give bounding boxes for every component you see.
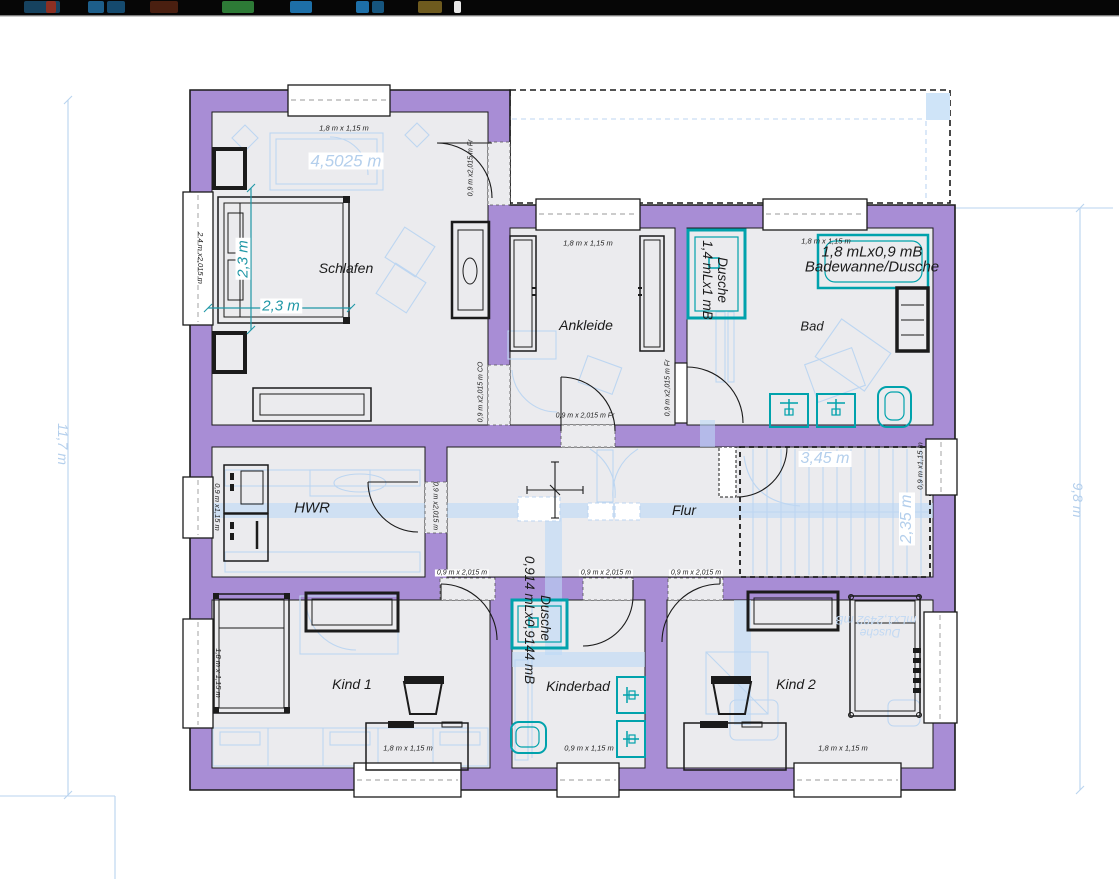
- bed-post: [213, 593, 219, 599]
- window-schlafen-top: [288, 85, 390, 116]
- chair-kind1-back: [404, 676, 444, 684]
- dryer-knob: [230, 522, 234, 529]
- door-leaf-stairs: [719, 447, 736, 497]
- label-win-label-kind1-left: 1,8 m x 1,15 m: [214, 648, 222, 698]
- label-door-label-ankleide: 0,9 m x 2,015 m Fr: [556, 413, 615, 420]
- label-dim-23-v: 2,3 m: [236, 238, 251, 280]
- label-tub-dims: 1,8 mLx0,9 mB: [822, 245, 923, 260]
- label-win-label-ankleide-top: 1,8 m x 1,15 m: [563, 239, 613, 247]
- label-door-label-hwr: 0,9 m x2,015 m: [432, 482, 439, 530]
- label-door-label-schlafen-co: 0,9 m x2,015 m CO: [478, 362, 485, 423]
- door-opening-kind1: [440, 578, 495, 600]
- label-dim-23-h: 2,3 m: [260, 299, 302, 314]
- label-win-label-kind2-bottom: 1,8 m x 1,15 m: [818, 744, 868, 752]
- chair-kind2-back: [711, 676, 751, 684]
- label-room-kinderbad: Kinderbad: [546, 679, 610, 693]
- desk-item: [700, 721, 728, 728]
- bed-post: [284, 707, 290, 713]
- ladder-rung: [913, 688, 921, 693]
- floorplan-canvas[interactable]: [0, 0, 1119, 879]
- washer-knob: [230, 473, 234, 480]
- dryer-knob: [230, 533, 234, 540]
- window-kind2-right: [924, 612, 957, 723]
- window-bad-top: [763, 199, 867, 230]
- label-shower-bad-dims: 1,4 mLx1 mB: [700, 240, 714, 320]
- label-door-label-kinderbad: 0,9 m x 2,015 m: [579, 570, 633, 577]
- floorplan-app-screen: SchlafenAnkleideBadHWRFlurKind 1Kinderba…: [0, 0, 1119, 879]
- label-room-hwr: HWR: [294, 501, 330, 516]
- label-tub-name: Badewanne/Dusche: [805, 260, 939, 275]
- label-room-schlafen: Schlafen: [319, 261, 373, 275]
- label-win-label-hwr-left: 0,9 m x1,15 m: [213, 483, 221, 531]
- ghost-chip: [615, 503, 640, 520]
- roof-terrace-corner: [926, 93, 950, 120]
- door-opening-schlafen-fr: [488, 142, 510, 205]
- label-win-label-schlafen-top: 1,8 m x 1,15 m: [319, 124, 369, 132]
- label-win-label-schlafen-left: 2,4 m x2,015 m: [196, 232, 204, 284]
- label-dim-98: 9,8 m: [1071, 482, 1085, 517]
- door-opening-kinderbad: [583, 578, 633, 600]
- roof-terrace-outline: [510, 90, 950, 203]
- label-room-ankleide: Ankleide: [559, 318, 613, 332]
- label-room-bad: Bad: [800, 320, 823, 333]
- ladder-rung: [913, 668, 921, 673]
- window-ankleide-top: [536, 199, 640, 230]
- window-stairs-right: [926, 439, 957, 495]
- label-dim-235: 2,35 m: [899, 493, 915, 546]
- ghost-band-bad-door: [700, 420, 715, 447]
- ladder-rung: [913, 648, 921, 653]
- label-dim-345: 3,45 m: [799, 451, 852, 467]
- ghost-chip: [588, 503, 613, 520]
- washer-knob: [230, 484, 234, 491]
- label-ghost-dusche-dims: mLx1,2492 mB: [836, 614, 917, 626]
- desk-item: [388, 721, 414, 728]
- label-door-label-schlafen-fr: 0,9 m x2,015 m Fr: [468, 140, 475, 197]
- ghost-band-flur-v: [545, 518, 562, 600]
- ladder-rung: [913, 678, 921, 683]
- label-room-kind1: Kind 1: [332, 677, 372, 691]
- label-dim-45025: 4,5025 m: [309, 153, 384, 170]
- label-room-flur: Flur: [672, 503, 696, 517]
- label-shower-bad-name: Dusche: [715, 257, 729, 303]
- label-win-label-kind1-bottom: 1,8 m x 1,15 m: [383, 744, 433, 752]
- label-dim-117: 11,7 m: [56, 423, 70, 465]
- label-door-label-bad: 0,9 m x2,015 m Fr: [665, 360, 672, 417]
- bed-post: [284, 593, 290, 599]
- label-shower-kinderbad-dims: 0,914 mLx0,9144 mB: [522, 556, 536, 684]
- ladder-rung: [913, 658, 921, 663]
- label-door-label-kind2: 0,9 m x 2,015 m: [669, 570, 723, 577]
- bed-post: [343, 196, 350, 203]
- door-opening-ankleide: [561, 425, 615, 447]
- bed-post: [213, 707, 219, 713]
- door-leaf-bad: [675, 363, 687, 423]
- label-win-label-stairs-right: 0,9 m x1,15 m: [916, 442, 924, 490]
- label-win-label-kinderbad-bottom: 0,9 m x 1,15 m: [564, 744, 614, 752]
- label-door-label-kind1: 0,9 m x 2,015 m: [435, 570, 489, 577]
- bed-post: [343, 317, 350, 324]
- door-opening-schlafen-co: [488, 365, 510, 425]
- label-shower-kinderbad-name: Dusche: [538, 595, 552, 641]
- label-ghost-dusche-name: Dusche: [860, 627, 901, 639]
- ghost-chip: [518, 497, 560, 521]
- label-room-kind2: Kind 2: [776, 677, 816, 691]
